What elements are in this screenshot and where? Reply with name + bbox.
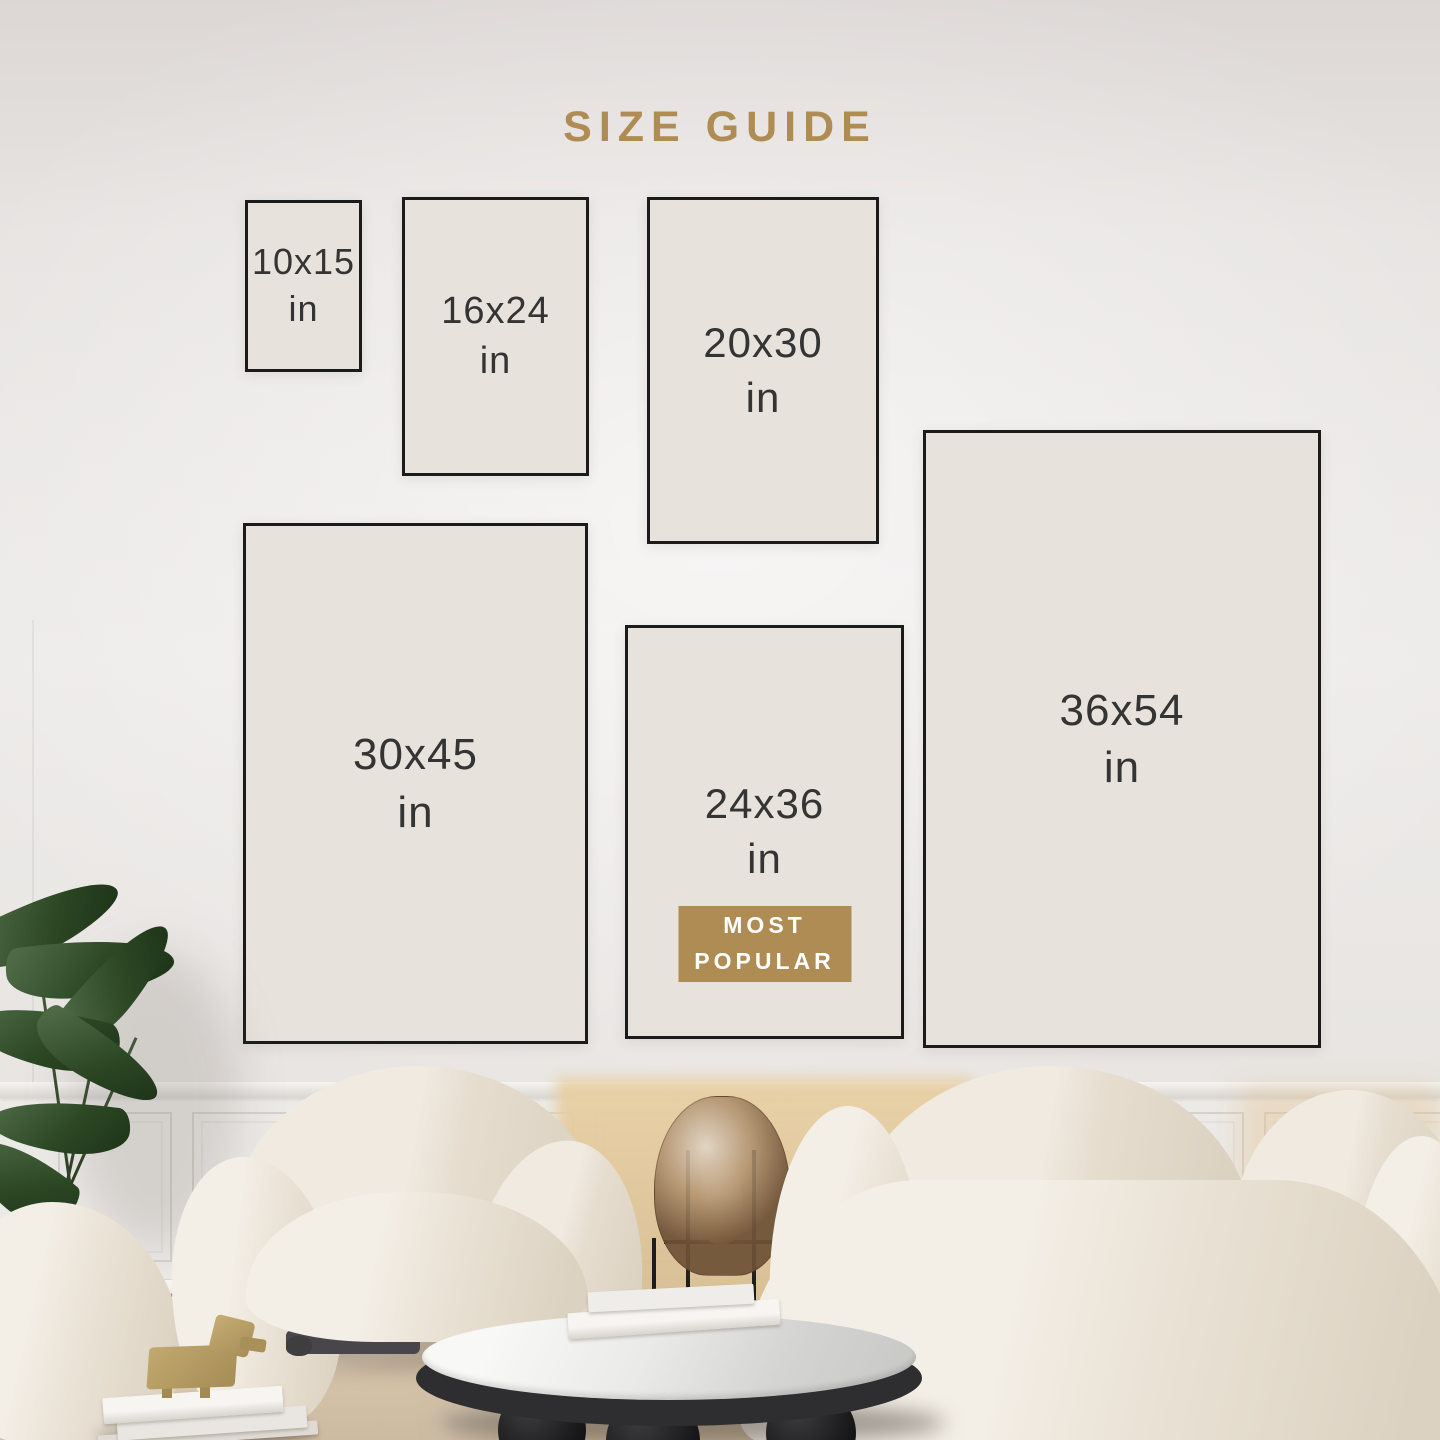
lamp-glass-shade bbox=[654, 1096, 790, 1276]
size-guide-image: SIZE GUIDE 10x15 in 16x24 in 20x30 in 36… bbox=[0, 0, 1440, 1440]
size-box-16x24: 16x24 in bbox=[402, 197, 589, 476]
badge-line-2: POPULAR bbox=[678, 944, 851, 980]
size-box-10x15: 10x15 in bbox=[245, 200, 362, 372]
size-unit: in bbox=[705, 832, 824, 887]
size-dimensions: 10x15 bbox=[252, 239, 355, 286]
size-dimensions: 36x54 bbox=[1060, 682, 1185, 739]
page-title: SIZE GUIDE bbox=[0, 103, 1440, 152]
size-dimensions: 24x36 bbox=[705, 777, 824, 832]
size-unit: in bbox=[1060, 739, 1185, 796]
size-unit: in bbox=[441, 337, 550, 386]
size-dimensions: 20x30 bbox=[703, 316, 822, 371]
most-popular-badge: MOST POPULAR bbox=[678, 906, 851, 982]
size-box-36x54: 36x54 in bbox=[923, 430, 1321, 1048]
size-dimensions: 16x24 bbox=[441, 287, 550, 336]
size-box-20x30: 20x30 in bbox=[647, 197, 879, 544]
size-box-30x45: 30x45 in bbox=[243, 523, 588, 1044]
size-unit: in bbox=[353, 784, 478, 841]
badge-line-1: MOST bbox=[678, 908, 851, 944]
size-dimensions: 30x45 bbox=[353, 726, 478, 783]
size-unit: in bbox=[252, 286, 355, 333]
size-unit: in bbox=[703, 371, 822, 426]
size-box-24x36: 24x36 in MOST POPULAR bbox=[625, 625, 904, 1039]
armchair-foot bbox=[286, 1336, 312, 1356]
